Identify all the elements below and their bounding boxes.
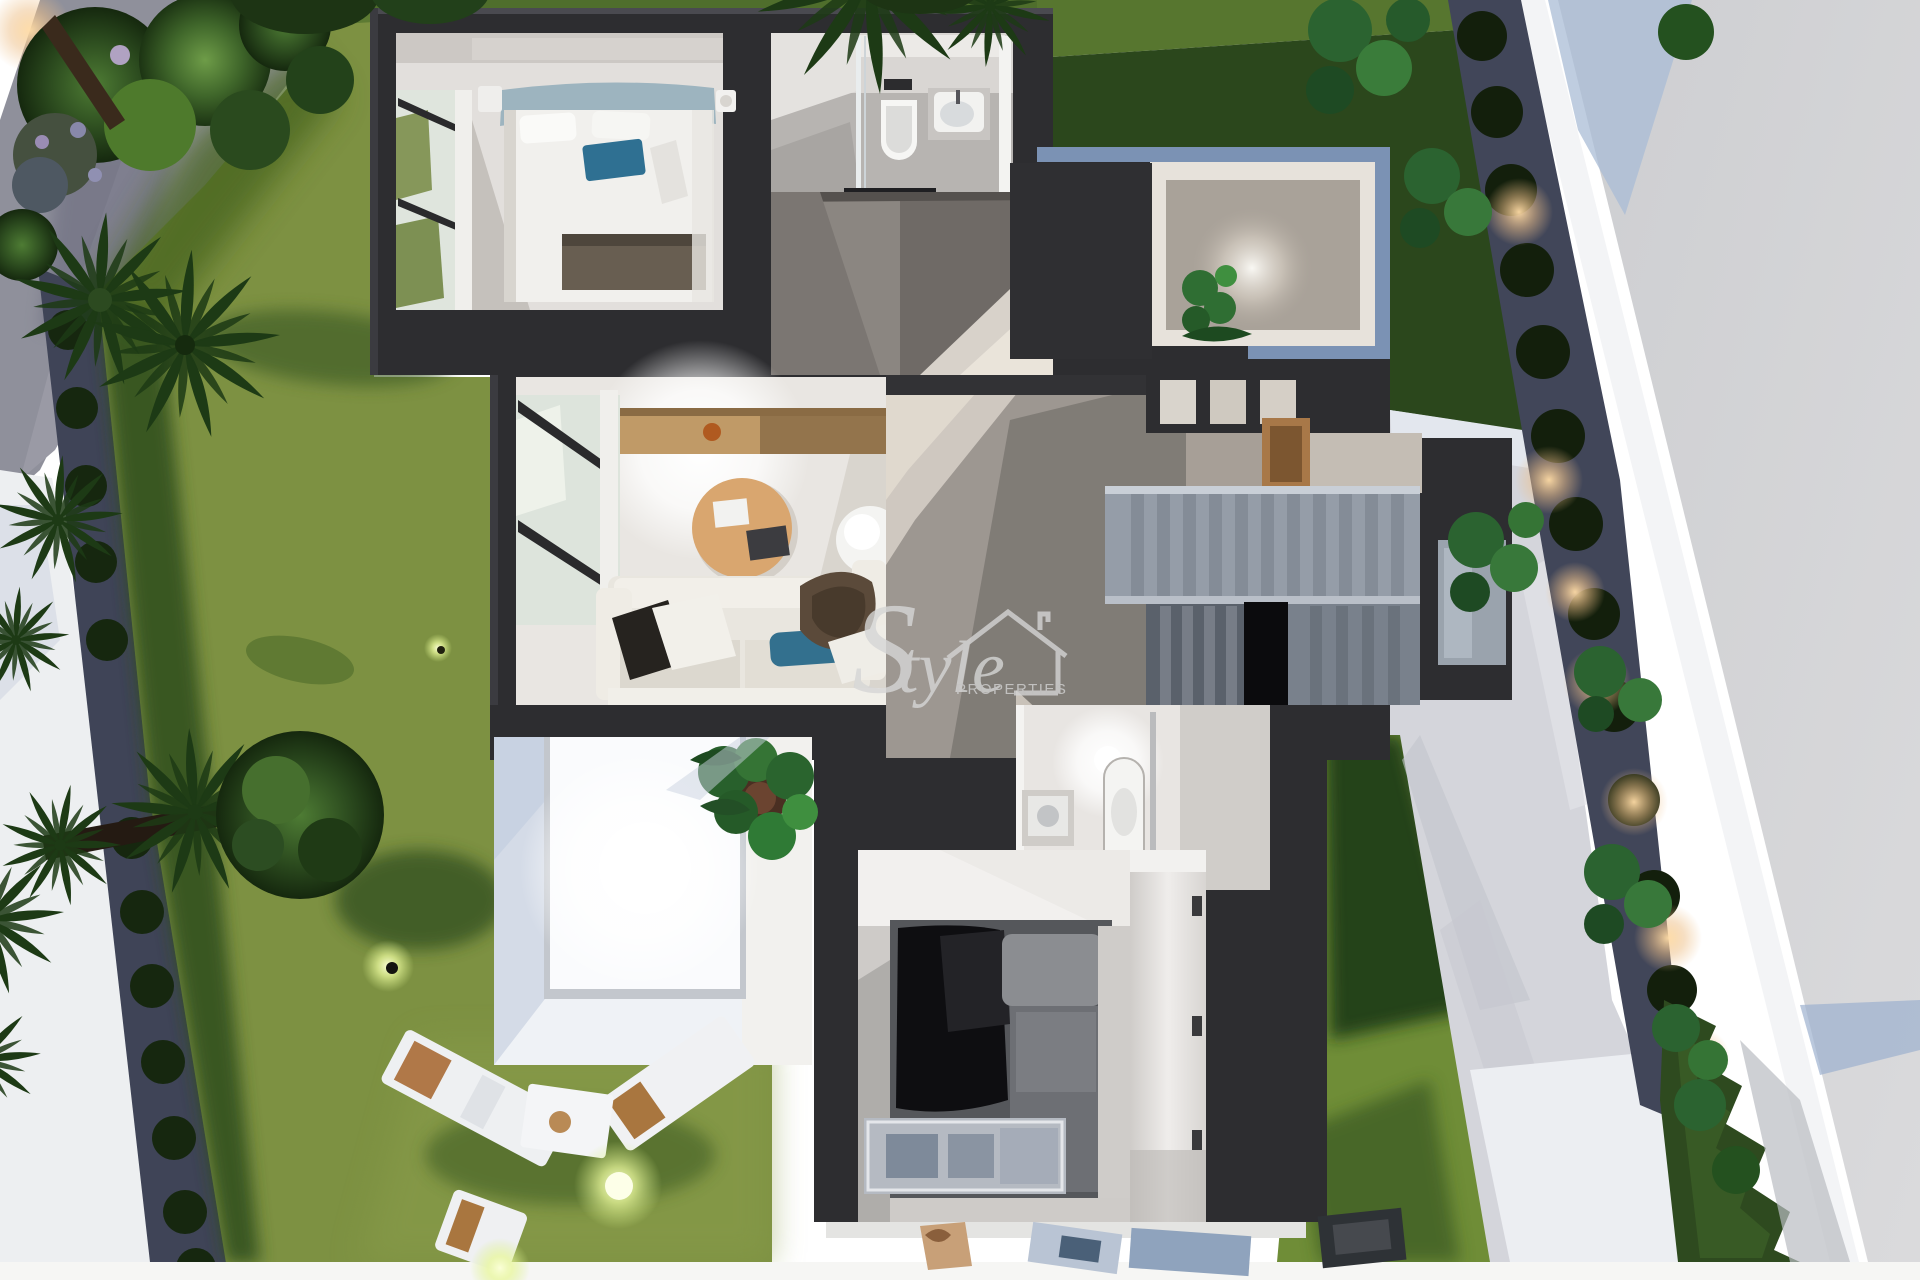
svg-text:PROPERTIES: PROPERTIES [956, 681, 1067, 698]
